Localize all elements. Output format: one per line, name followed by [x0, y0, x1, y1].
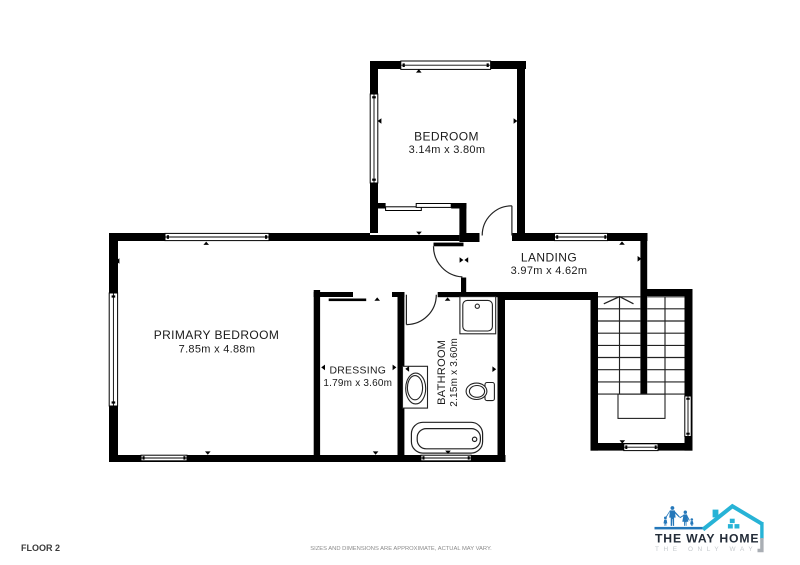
- svg-text:3.97m x 4.62m: 3.97m x 4.62m: [511, 265, 588, 277]
- svg-text:BEDROOM: BEDROOM: [414, 130, 479, 144]
- svg-text:3.14m x 3.80m: 3.14m x 3.80m: [409, 144, 486, 156]
- svg-text:PRIMARY BEDROOM: PRIMARY BEDROOM: [154, 328, 280, 342]
- svg-text:THE ONLY WAY: THE ONLY WAY: [655, 546, 757, 553]
- svg-text:SIZES AND DIMENSIONS ARE APPRO: SIZES AND DIMENSIONS ARE APPROXIMATE, AC…: [310, 546, 492, 552]
- svg-text:FLOOR 2: FLOOR 2: [21, 543, 60, 553]
- svg-text:7.85m x 4.88m: 7.85m x 4.88m: [179, 344, 256, 356]
- svg-text:BATHROOM: BATHROOM: [436, 340, 448, 405]
- svg-text:LANDING: LANDING: [521, 250, 577, 264]
- svg-text:DRESSING: DRESSING: [329, 365, 386, 376]
- svg-text:1.79m x 3.60m: 1.79m x 3.60m: [323, 378, 392, 389]
- svg-text:2.15m x 3.60m: 2.15m x 3.60m: [449, 338, 460, 407]
- svg-text:THE WAY HOME: THE WAY HOME: [655, 532, 759, 546]
